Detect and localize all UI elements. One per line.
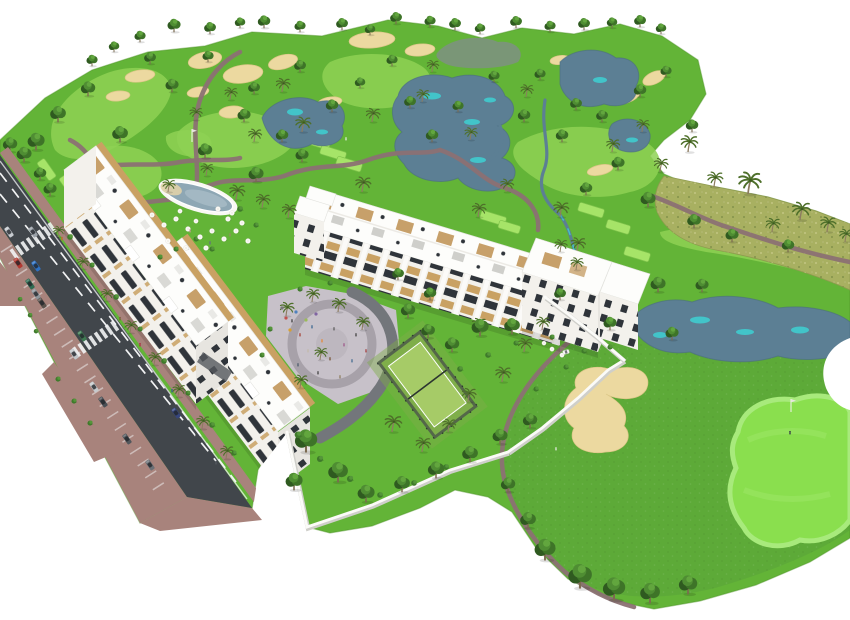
horizon-tree [109, 41, 119, 53]
person [339, 375, 340, 378]
person [333, 327, 334, 330]
person [365, 349, 366, 352]
person [139, 343, 141, 347]
playground-equipment [304, 318, 307, 321]
person [61, 237, 63, 241]
person [351, 359, 352, 362]
person [329, 357, 330, 360]
person [555, 447, 556, 450]
horizon-tree [336, 18, 348, 31]
horizon-tree [634, 15, 646, 28]
playground-equipment [288, 328, 291, 331]
playground-equipment [284, 316, 287, 319]
horizon-tree [656, 23, 666, 35]
horizon-tree [134, 31, 145, 44]
person [291, 319, 292, 322]
person [119, 317, 121, 321]
horizon-tree [510, 16, 522, 29]
person [209, 241, 210, 244]
horizon-tree [475, 23, 485, 35]
putting-green [730, 396, 850, 546]
person [189, 229, 190, 232]
person [307, 349, 308, 352]
person [171, 389, 173, 393]
person [355, 333, 356, 336]
person [299, 333, 300, 336]
horizon-tree [578, 18, 590, 31]
person [343, 343, 344, 346]
playground-equipment [294, 310, 297, 313]
person [49, 249, 51, 253]
person [789, 431, 791, 435]
horizon-tree [235, 17, 245, 29]
person [321, 339, 322, 342]
course-palm [681, 136, 697, 154]
horizon-tree [168, 19, 181, 34]
person [345, 137, 346, 140]
person [195, 433, 197, 437]
person [215, 461, 217, 465]
horizon-tree [204, 22, 216, 35]
person [229, 233, 230, 236]
playground-equipment [314, 312, 317, 315]
horizon-tree [294, 21, 305, 34]
playground-equipment [280, 306, 283, 309]
person [317, 371, 318, 374]
horizon-tree [258, 15, 270, 29]
horizon-tree [86, 55, 97, 68]
render-canvas [0, 0, 850, 620]
scene [0, 0, 850, 620]
person [311, 325, 312, 328]
person [297, 363, 298, 366]
